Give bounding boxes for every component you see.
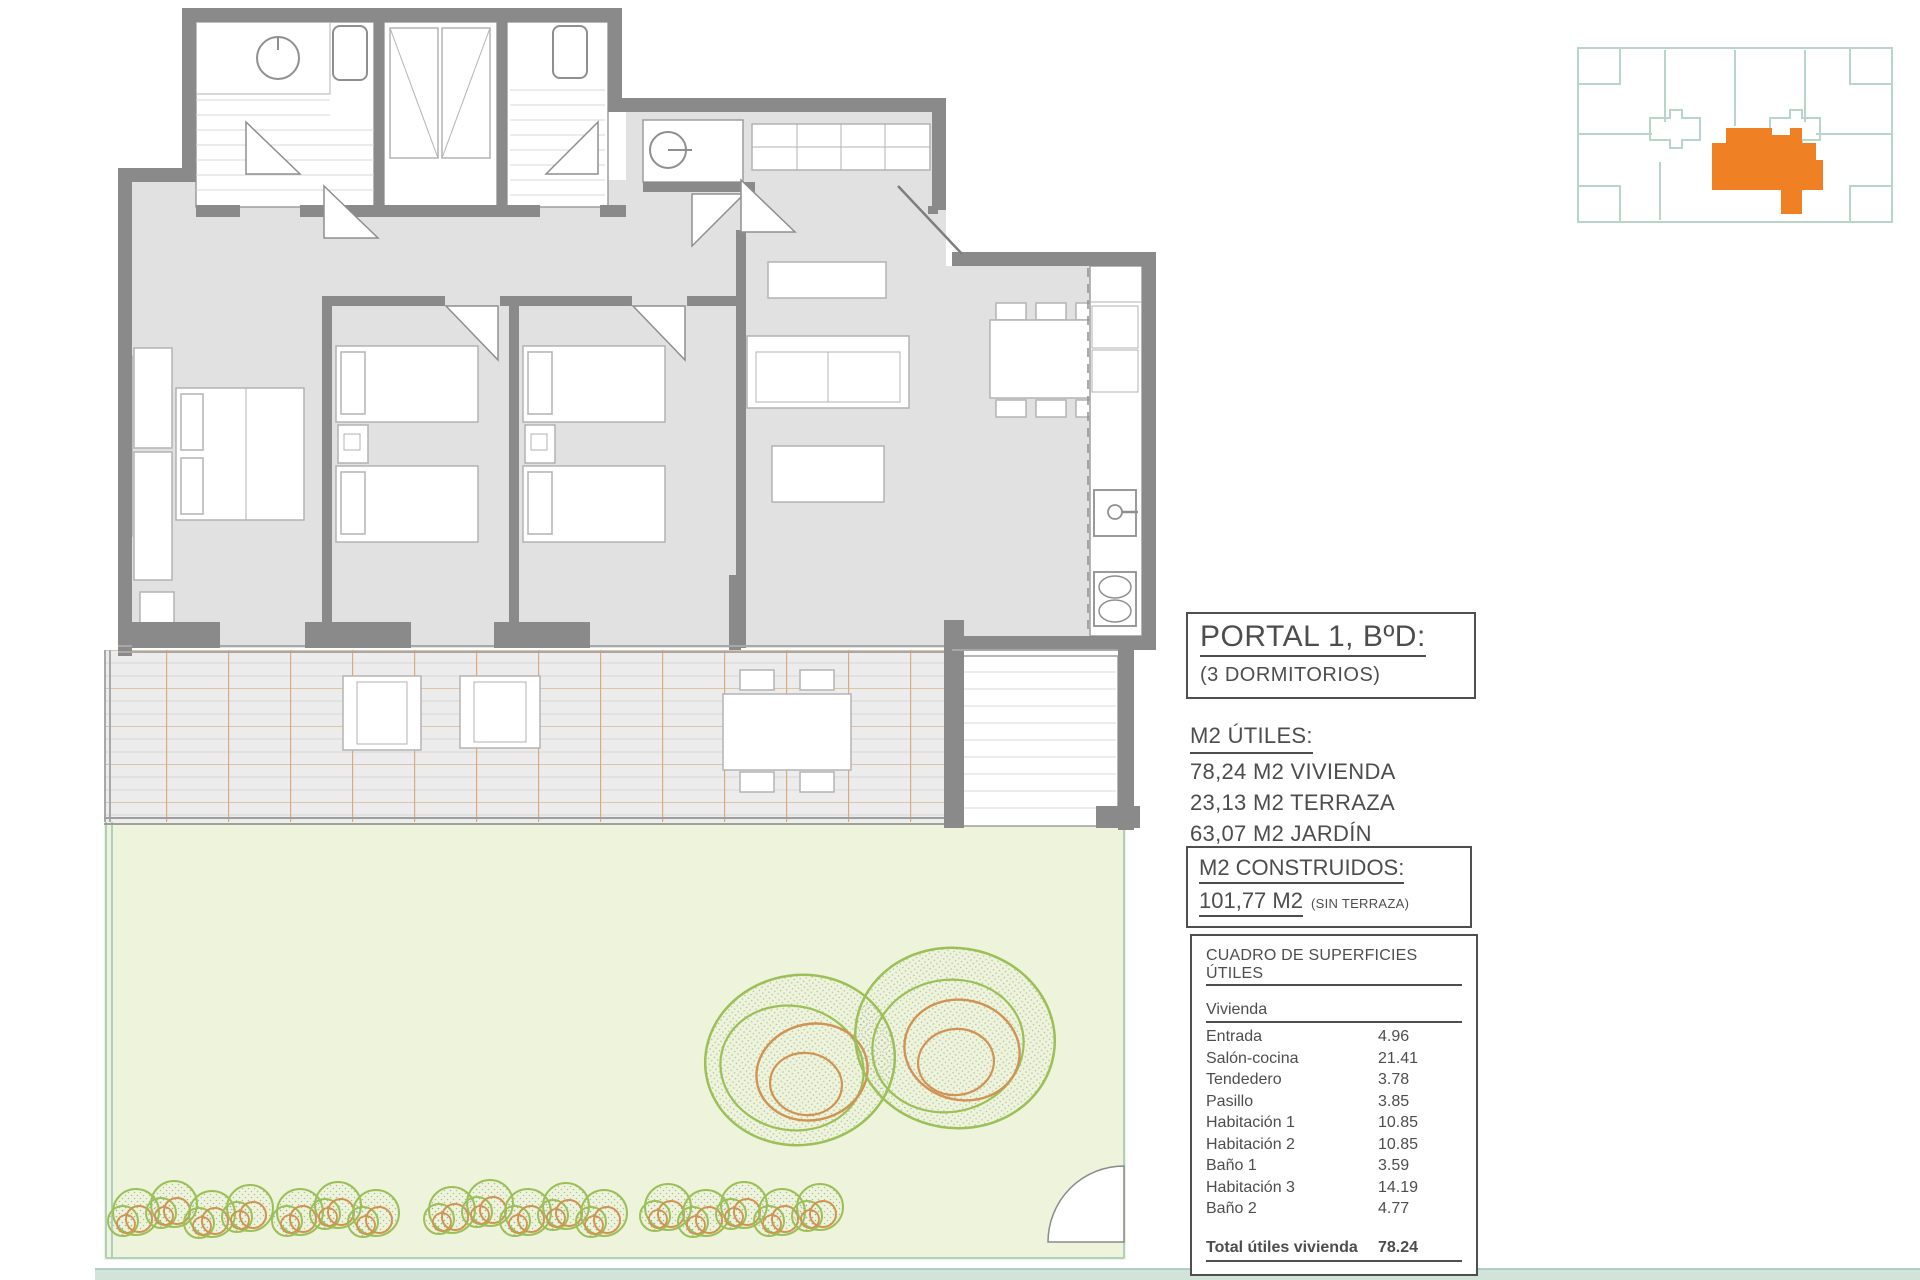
table-row: Habitación 2 10.85 [1206,1134,1462,1156]
floor-plan-drawing [0,0,1920,1280]
portal-title: PORTAL 1, BºD: [1200,620,1462,657]
cooktop-icon [1094,572,1136,626]
toilet-icon [553,26,587,78]
built-area-value: 101,77 M2 [1199,888,1303,917]
tendedero [952,656,1118,826]
toilet-icon [333,26,367,80]
table-row: Pasillo 3.85 [1206,1091,1462,1113]
useful-area-line: 78,24 M2 VIVIENDA [1190,756,1396,787]
hall-wardrobe [752,124,930,170]
table-row: Entrada 4.96 [1206,1026,1462,1048]
useful-area-heading: M2 ÚTILES: [1190,720,1313,754]
bedroom-closets [384,22,497,207]
table-total-row: Total útiles vivienda 78.24 [1206,1237,1462,1263]
surface-table-group: Vivienda [1206,1001,1462,1023]
table-row: Baño 1 3.59 [1206,1155,1462,1177]
bathroom-1 [196,22,374,207]
floorplan-sheet: PORTAL 1, BºD: (3 DORMITORIOS) M2 ÚTILES… [0,0,1920,1280]
built-area-heading: M2 CONSTRUIDOS: [1199,855,1404,884]
useful-area-line: 23,13 M2 TERRAZA [1190,787,1396,818]
portal-title-box: PORTAL 1, BºD: (3 DORMITORIOS) [1186,612,1476,699]
terrace-armchair [343,676,421,750]
bathroom-2 [507,22,608,207]
table-row: Tendedero 3.78 [1206,1069,1462,1091]
useful-area-block: M2 ÚTILES: 78,24 M2 VIVIENDA 23,13 M2 TE… [1190,720,1396,849]
table-row: Salón-cocina 21.41 [1206,1048,1462,1070]
terrace-armchair [460,676,540,748]
bathroom-entry [643,120,743,182]
table-row: Habitación 1 10.85 [1206,1112,1462,1134]
site-boundary [95,1269,1920,1280]
key-plan [1578,48,1892,222]
table-row: Baño 2 4.77 [1206,1198,1462,1220]
living-room-furniture [747,262,909,502]
built-area-note: (SIN TERRAZA) [1311,896,1409,911]
garden [104,822,1126,1260]
kitchen [1088,266,1142,636]
useful-area-line: 63,07 M2 JARDÍN [1190,818,1396,849]
surface-table-title: CUADRO DE SUPERFICIES ÚTILES [1206,947,1462,986]
table-row: Habitación 3 14.19 [1206,1177,1462,1199]
surface-table: CUADRO DE SUPERFICIES ÚTILES Vivienda En… [1190,934,1478,1276]
portal-subtitle: (3 DORMITORIOS) [1200,664,1462,687]
terrace [104,650,946,824]
built-area-box: M2 CONSTRUIDOS: 101,77 M2(SIN TERRAZA) [1186,846,1472,928]
